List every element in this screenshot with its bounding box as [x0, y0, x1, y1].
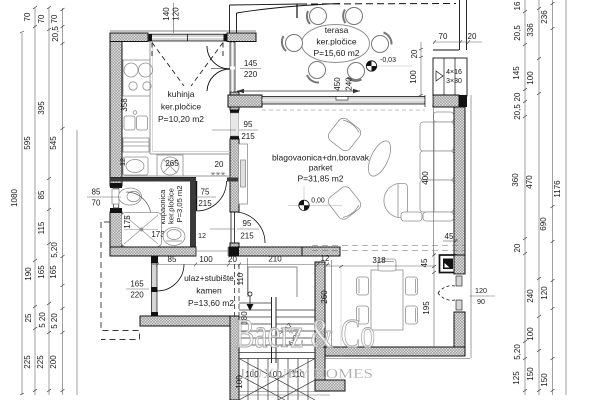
svg-text:20: 20: [513, 243, 522, 252]
svg-text:100: 100: [199, 255, 213, 264]
svg-text:kuhinja: kuhinja: [168, 89, 195, 99]
svg-text:215: 215: [241, 132, 255, 141]
svg-text:1080: 1080: [10, 189, 19, 207]
svg-text:85: 85: [168, 255, 177, 264]
svg-text:12: 12: [198, 231, 206, 240]
svg-text:0,00: 0,00: [311, 198, 325, 205]
svg-text:145: 145: [512, 66, 521, 80]
svg-text:20: 20: [410, 49, 419, 58]
svg-text:150: 150: [540, 373, 549, 387]
svg-text:5,20: 5,20: [513, 344, 522, 360]
svg-text:P=31,85 m2: P=31,85 m2: [297, 174, 343, 184]
svg-text:70: 70: [439, 32, 448, 41]
svg-text:110: 110: [236, 272, 245, 285]
svg-text:✳✳✳: ✳✳✳: [210, 171, 225, 178]
svg-text:360: 360: [511, 173, 520, 187]
svg-text:220: 220: [244, 70, 258, 79]
svg-text:terasa: terasa: [325, 25, 349, 35]
svg-text:5,20: 5,20: [50, 242, 59, 258]
svg-text:75: 75: [201, 188, 210, 197]
svg-text:195: 195: [422, 301, 431, 315]
svg-text:20: 20: [215, 160, 224, 169]
svg-text:95: 95: [243, 219, 252, 228]
svg-text:236: 236: [540, 10, 549, 24]
svg-text:20: 20: [228, 255, 237, 264]
svg-text:16: 16: [513, 1, 522, 10]
svg-text:115: 115: [37, 221, 46, 234]
svg-text:70: 70: [23, 12, 32, 21]
svg-text:175: 175: [123, 215, 132, 229]
svg-text:20,5: 20,5: [513, 104, 522, 120]
svg-text:parket: parket: [309, 163, 333, 173]
svg-text:225: 225: [36, 355, 45, 369]
svg-text:Baerz & Co: Baerz & Co: [235, 310, 375, 356]
svg-text:470: 470: [525, 175, 534, 189]
svg-text:200: 200: [49, 355, 58, 369]
svg-text:P=3,05 m2: P=3,05 m2: [175, 186, 184, 223]
svg-text:12: 12: [118, 158, 127, 166]
svg-text:20: 20: [468, 32, 477, 41]
svg-text:150: 150: [526, 367, 535, 381]
svg-text:-0,03: -0,03: [380, 57, 396, 64]
svg-text:70: 70: [50, 14, 59, 23]
svg-text:165: 165: [130, 280, 144, 289]
svg-text:P=10,20 m2: P=10,20 m2: [158, 114, 204, 124]
svg-text:120: 120: [172, 7, 181, 21]
svg-text:5 20: 5 20: [38, 312, 47, 328]
svg-text:20,5: 20,5: [51, 26, 60, 42]
svg-text:125: 125: [512, 371, 521, 385]
svg-text:100: 100: [526, 71, 535, 85]
svg-text:395: 395: [37, 101, 46, 115]
svg-text:240: 240: [345, 77, 354, 91]
svg-text:400: 400: [421, 171, 430, 185]
svg-text:3×30: 3×30: [446, 78, 462, 85]
svg-text:ker.pločice: ker.pločice: [316, 37, 356, 47]
svg-text:215: 215: [198, 199, 212, 208]
svg-text:225: 225: [23, 355, 32, 369]
svg-text:240: 240: [526, 289, 535, 303]
svg-text:1176: 1176: [553, 180, 562, 198]
svg-text:336: 336: [526, 23, 535, 37]
svg-text:265: 265: [165, 159, 179, 168]
svg-text:595: 595: [23, 136, 32, 150]
svg-text:358: 358: [120, 98, 129, 112]
svg-text:45: 45: [420, 258, 429, 267]
svg-text:318: 318: [372, 256, 386, 265]
svg-text:120: 120: [475, 286, 487, 295]
svg-text:165: 165: [49, 265, 58, 279]
svg-text:85: 85: [37, 190, 46, 199]
svg-text:20,5: 20,5: [513, 25, 522, 41]
svg-text:140: 140: [162, 7, 171, 21]
svg-text:blagovaonica+dn.boravak: blagovaonica+dn.boravak: [272, 153, 370, 163]
svg-text:260: 260: [320, 290, 329, 304]
svg-text:100: 100: [526, 327, 535, 341]
svg-text:LUXURY HOMES: LUXURY HOMES: [240, 366, 373, 381]
svg-text:90: 90: [477, 297, 485, 306]
svg-text:450: 450: [333, 77, 342, 91]
svg-text:45: 45: [445, 232, 454, 241]
svg-text:145: 145: [244, 59, 258, 68]
svg-text:220: 220: [130, 291, 144, 300]
svg-text:12: 12: [321, 254, 330, 263]
svg-text:ker.pločice: ker.pločice: [161, 102, 201, 112]
svg-text:545: 545: [49, 136, 58, 150]
svg-text:120: 120: [540, 286, 549, 300]
svg-text:100: 100: [409, 70, 418, 84]
svg-text:70: 70: [92, 199, 101, 208]
svg-text:P=13,60 m2: P=13,60 m2: [188, 298, 234, 308]
svg-text:85: 85: [92, 188, 101, 197]
svg-text:kamen: kamen: [196, 286, 222, 296]
svg-text:5 20: 5 20: [50, 313, 59, 329]
svg-text:690: 690: [539, 217, 548, 231]
svg-text:210: 210: [268, 255, 282, 264]
svg-text:20: 20: [513, 92, 522, 101]
svg-text:25: 25: [24, 313, 33, 322]
svg-text:ulaz+stubište: ulaz+stubište: [184, 273, 234, 283]
svg-text:215: 215: [240, 232, 254, 241]
svg-text:70: 70: [37, 14, 46, 23]
svg-text:190: 190: [24, 267, 33, 281]
svg-text:165: 165: [37, 265, 46, 279]
svg-text:P=15,60 m2: P=15,60 m2: [313, 48, 359, 58]
svg-text:4×16: 4×16: [446, 69, 462, 76]
svg-text:95: 95: [244, 120, 253, 129]
